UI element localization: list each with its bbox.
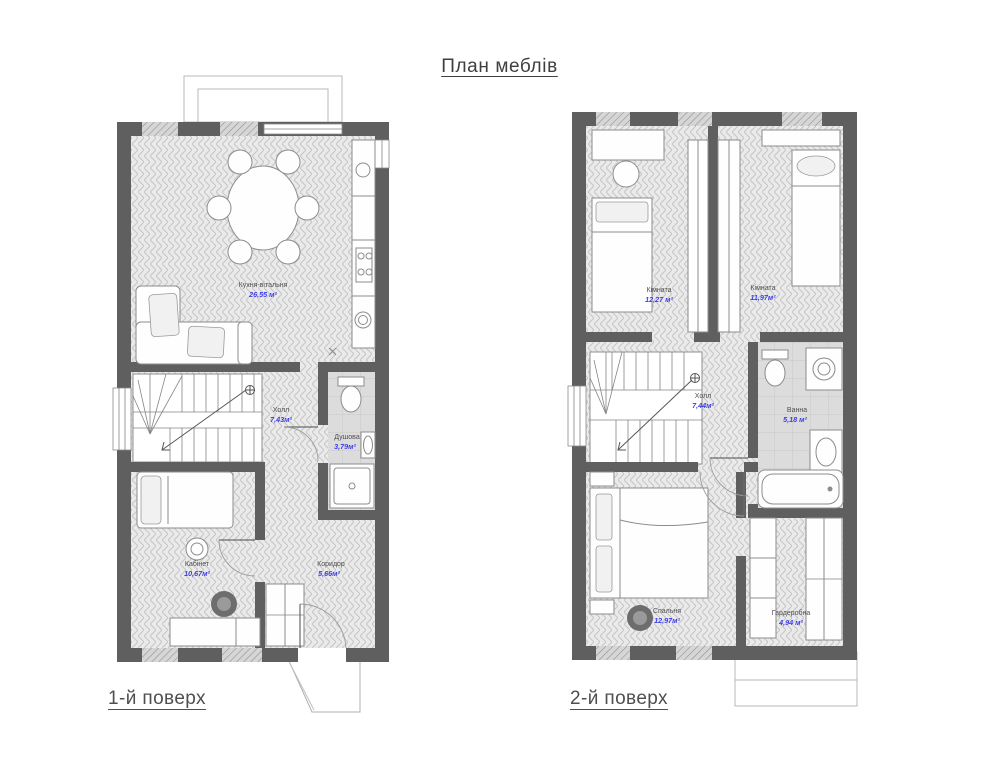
wardrobe-unit-right [806,518,842,640]
furniture-plan-page: План меблів [0,0,999,771]
shower-tray [330,464,374,508]
floor1-label: 1-й поверх [108,688,206,710]
svg-text:7,43м²: 7,43м² [270,415,292,424]
wardrobe-column-left [688,140,708,332]
svg-text:11,97м²: 11,97м² [750,293,776,302]
room-label-office: Кабінет 10,67м² [184,560,210,578]
balcony-outline [735,652,857,706]
svg-text:5,18 м²: 5,18 м² [783,415,807,424]
wardrobe-column-right [718,140,740,332]
svg-text:Кухня-вітальня: Кухня-вітальня [239,281,288,289]
svg-text:12,97м²: 12,97м² [654,616,680,625]
svg-text:3,79м²: 3,79м² [334,442,356,451]
plant [627,605,653,631]
svg-text:Гардеробна: Гардеробна [772,609,811,617]
room-label-hall2: Холл 7,44м² [692,393,714,410]
desk-1 [592,130,664,160]
page-title: План меблів [441,56,558,78]
svg-text:4,94 м²: 4,94 м² [778,618,803,627]
svg-text:Спальня: Спальня [653,608,681,615]
double-bed [590,488,708,598]
svg-text:12,27 м²: 12,27 м² [645,295,673,304]
floor2-plan: Кімната 12,27 м² Кімната 11,97м² Холл 7,… [555,60,875,720]
office-desk [170,618,260,646]
svg-text:Коридор: Коридор [317,561,345,568]
svg-text:Душова: Душова [334,434,360,441]
room-label-bath: Ванна 5,18 м² [783,407,807,424]
washer-2 [806,348,842,390]
room-label-master-bedroom: Спальня 12,97м² [653,608,681,625]
staircase-2 [590,352,702,464]
washbasin-2 [810,430,842,474]
office-chair [211,591,237,617]
desk-chair-1 [613,161,639,187]
entry-door-opening [298,648,346,662]
bathtub [758,470,843,508]
nightstand-top [590,472,614,486]
terrace-outline [184,76,342,122]
svg-text:Кімната: Кімната [750,284,775,292]
svg-text:7,44м²: 7,44м² [692,401,714,410]
room-label-hall: Холл 7,43м² [270,407,292,424]
svg-text:5,66м²: 5,66м² [318,569,340,578]
svg-text:Холл: Холл [695,393,712,400]
svg-text:Кабінет: Кабінет [185,560,210,568]
shelf-2 [762,130,840,146]
washbasin [361,432,375,458]
floor1-plan: Кухня-вітальня 26,55 м² Холл 7,43м² Душо… [100,60,405,720]
hall-wardrobe [266,584,304,646]
room-label-bedroom2: Кімната 11,97м² [750,284,776,302]
wardrobe-unit-left [750,518,776,638]
svg-text:26,55 м²: 26,55 м² [248,290,277,299]
svg-text:Ванна: Ванна [787,407,807,414]
floor2-label: 2-й поверх [570,688,668,710]
round-side-table [186,538,208,560]
office-daybed [137,472,233,528]
staircase [133,374,262,462]
svg-text:10,67м²: 10,67м² [184,569,210,578]
single-bed-1 [592,198,652,312]
svg-text:Кімната: Кімната [646,286,671,294]
nightstand-bottom [590,600,614,614]
svg-text:Холл: Холл [273,407,290,414]
room-label-bedroom1: Кімната 12,27 м² [645,286,673,304]
single-bed-2 [792,150,840,286]
